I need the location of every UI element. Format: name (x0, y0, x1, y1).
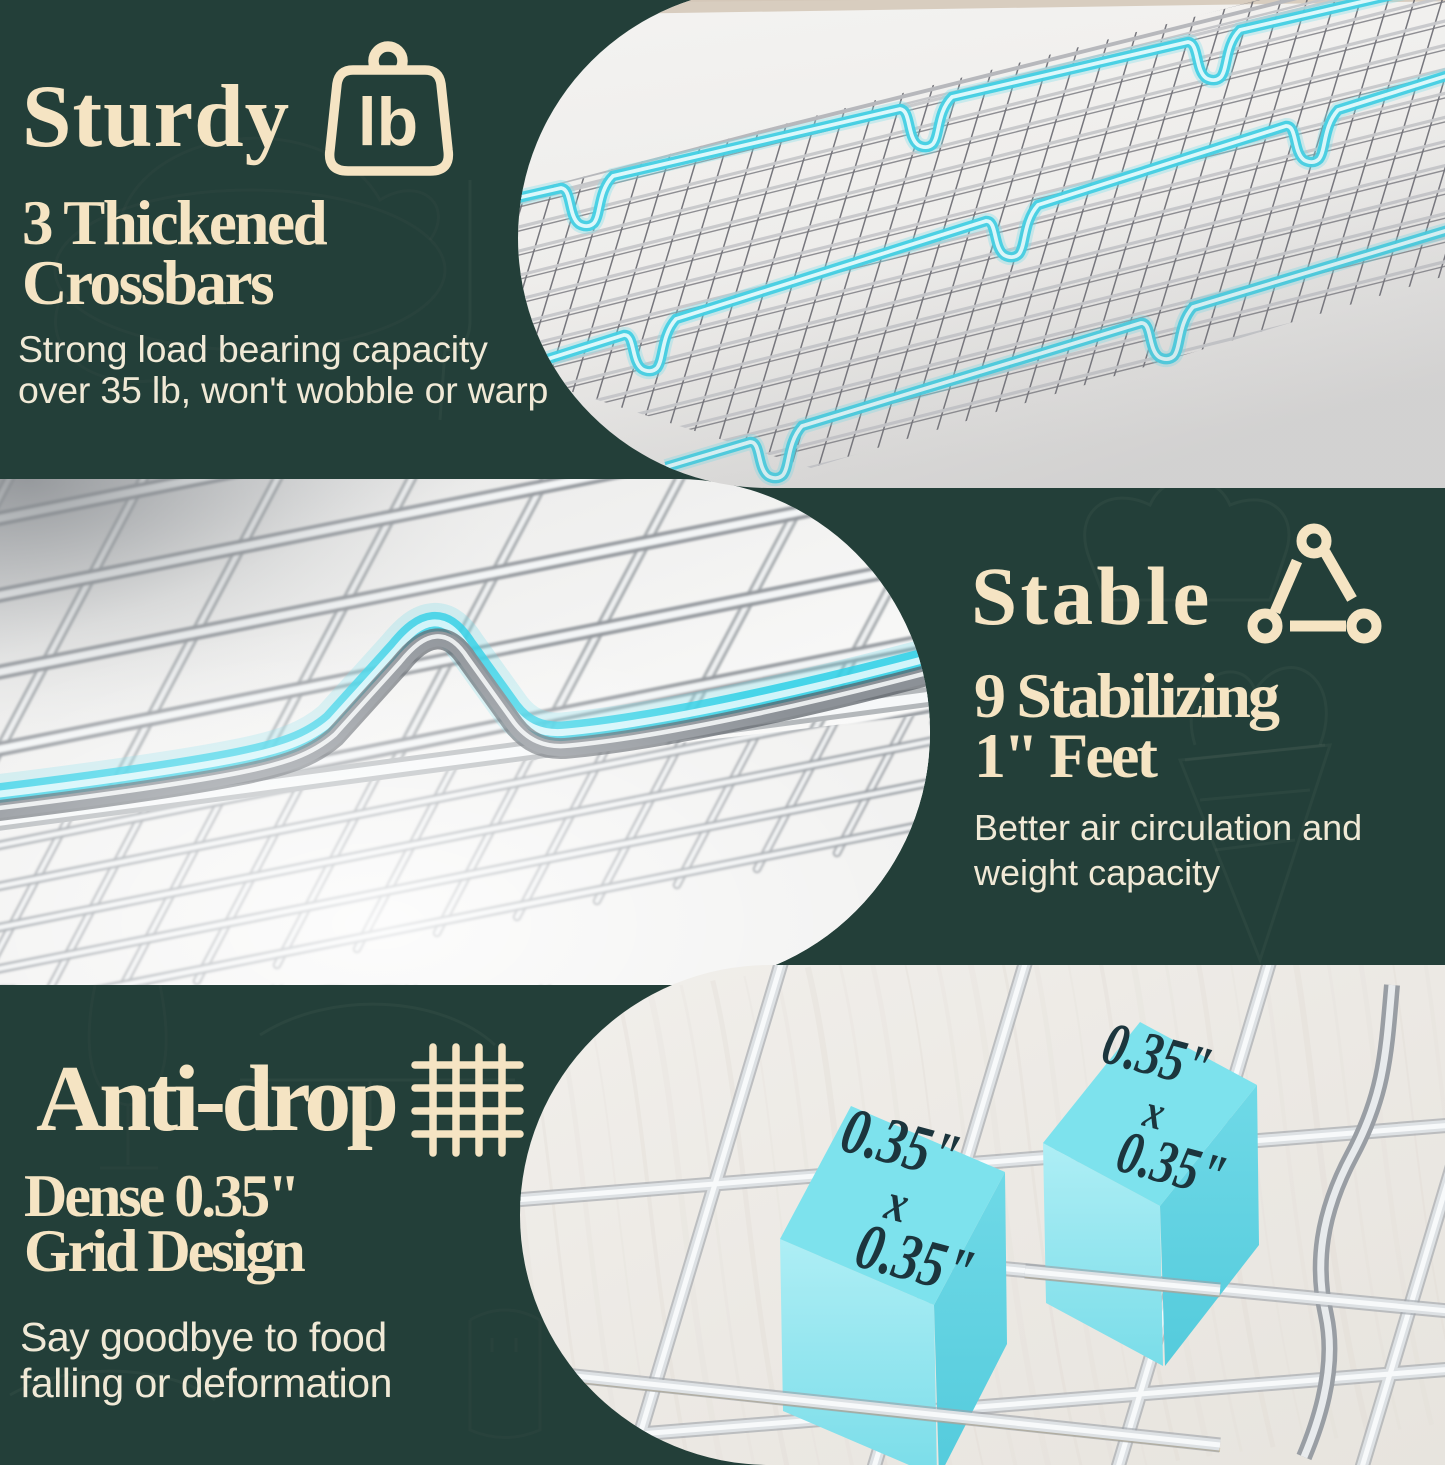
svg-text:lb: lb (358, 84, 418, 160)
